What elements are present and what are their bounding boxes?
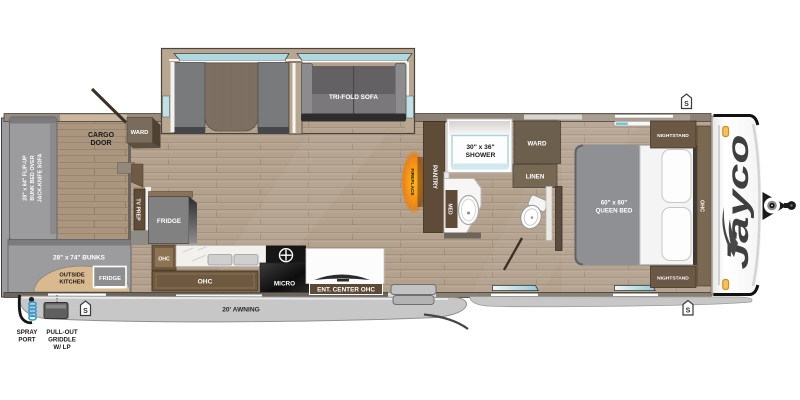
- svg-text:MICRO: MICRO: [274, 281, 295, 288]
- svg-text:QUEEN BED: QUEEN BED: [596, 208, 633, 215]
- svg-text:OHC: OHC: [699, 200, 705, 212]
- svg-text:OUTSIDE: OUTSIDE: [59, 273, 84, 279]
- svg-text:PANTRY: PANTRY: [431, 165, 437, 189]
- svg-text:Jayco: Jayco: [722, 135, 755, 270]
- svg-text:BUNK BED OVER: BUNK BED OVER: [30, 155, 36, 200]
- svg-text:30" x 36": 30" x 36": [466, 144, 494, 151]
- svg-text:TRI-FOLD SOFA: TRI-FOLD SOFA: [329, 94, 378, 101]
- svg-text:W/ LP: W/ LP: [53, 344, 70, 351]
- svg-text:KITCHEN: KITCHEN: [59, 280, 84, 286]
- svg-text:WARD: WARD: [131, 130, 149, 136]
- svg-text:FIREPLACE: FIREPLACE: [409, 168, 415, 196]
- svg-text:OHC: OHC: [158, 257, 170, 263]
- svg-text:CARGO: CARGO: [88, 132, 115, 139]
- svg-text:GRIDDLE: GRIDDLE: [48, 337, 76, 344]
- svg-text:FRIDGE: FRIDGE: [157, 218, 182, 225]
- svg-text:OHC: OHC: [198, 279, 213, 286]
- svg-text:28" x 64" FLIP-UP: 28" x 64" FLIP-UP: [23, 155, 29, 201]
- svg-text:WARD: WARD: [528, 141, 547, 148]
- svg-text:SPRAY: SPRAY: [17, 329, 39, 336]
- svg-text:FRIDGE: FRIDGE: [99, 276, 121, 282]
- svg-text:PORT: PORT: [18, 337, 35, 344]
- svg-text:NIGHTSTAND: NIGHTSTAND: [657, 133, 689, 139]
- svg-text:NIGHTSTAND: NIGHTSTAND: [657, 276, 689, 282]
- svg-text:TV PREP: TV PREP: [135, 198, 141, 221]
- svg-text:28" x 74" BUNKS: 28" x 74" BUNKS: [53, 255, 106, 262]
- svg-text:JACK-KNIFE SOFA: JACK-KNIFE SOFA: [38, 153, 44, 202]
- svg-text:DOOR: DOOR: [91, 140, 112, 147]
- svg-text:20' AWNING: 20' AWNING: [222, 307, 260, 314]
- svg-text:PULL-OUT: PULL-OUT: [46, 329, 77, 336]
- svg-text:ENT. CENTER OHC: ENT. CENTER OHC: [317, 287, 375, 294]
- svg-text:SHOWER: SHOWER: [466, 152, 496, 159]
- svg-text:S: S: [83, 308, 88, 315]
- svg-text:S: S: [686, 308, 691, 315]
- svg-text:LINEN: LINEN: [526, 174, 545, 181]
- svg-text:MED: MED: [447, 203, 453, 215]
- svg-text:60" x 80": 60" x 80": [601, 200, 628, 207]
- svg-text:S: S: [684, 101, 689, 108]
